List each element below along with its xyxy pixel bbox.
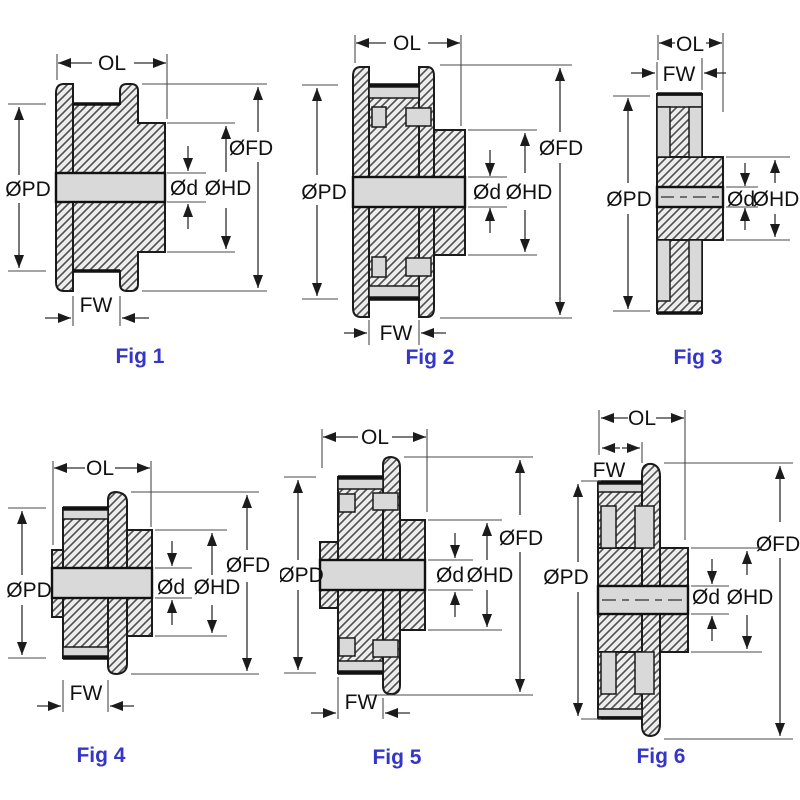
bore	[52, 568, 152, 598]
bore	[56, 173, 165, 202]
top-cap	[63, 510, 108, 519]
dim-label-d: Ød	[170, 177, 198, 200]
dim-label-hd: ØHD	[753, 188, 800, 211]
dim-label-fd: ØFD	[229, 137, 273, 160]
figure-caption: Fig 2	[405, 346, 454, 369]
dim-label-fw: FW	[380, 322, 413, 345]
dim-label-hd: ØHD	[727, 586, 774, 609]
lower-recess-band	[369, 286, 419, 297]
dim-label-ol: OL	[676, 33, 704, 56]
top-cap	[598, 484, 642, 492]
insert	[372, 107, 386, 127]
dim-label-fd: ØFD	[539, 137, 583, 160]
figure-3-drawing: OL FW ØPD Ød ØHD Fig 3	[580, 0, 800, 380]
figure-1-drawing: OL ØPD ØFD ØHD Ød FW Fig 1	[0, 0, 300, 380]
dim-label-pd: ØPD	[5, 178, 51, 201]
dim-label-d: Ød	[692, 586, 720, 609]
dim-label-hd: ØHD	[467, 564, 514, 587]
bore	[320, 560, 425, 590]
dim-label-pd: ØPD	[606, 188, 652, 211]
rim-relief	[689, 240, 702, 301]
dim-label-d: Ød	[157, 576, 185, 599]
figure-6-drawing: OL FW ØPD ØFD ØHD Ød Fig 6	[540, 390, 800, 800]
figure-caption: Fig 4	[76, 744, 125, 767]
dim-label-fd: ØFD	[756, 533, 800, 556]
bottom-cap	[598, 709, 642, 717]
top-cap	[338, 479, 383, 489]
insert	[373, 640, 398, 657]
figure-caption: Fig 5	[372, 746, 421, 769]
top-cap	[657, 95, 702, 107]
figure-2-drawing: OL ØPD ØFD ØHD Ød FW Fig 2	[280, 0, 590, 380]
rim-relief	[635, 506, 654, 548]
insert	[373, 493, 398, 510]
dim-label-d: Ød	[436, 564, 464, 587]
lower-body	[369, 207, 419, 299]
upper-body	[369, 85, 419, 177]
fig6-pulley-cross-section	[598, 464, 688, 736]
fig2-pulley-cross-section	[353, 67, 465, 317]
upper-recess-band	[369, 87, 419, 98]
fig3-pulley-cross-section	[657, 94, 723, 313]
fig5-pulley-cross-section	[320, 457, 425, 694]
dim-label-fw: FW	[663, 63, 696, 86]
lower-body	[73, 202, 165, 291]
dim-label-ol: OL	[86, 457, 114, 480]
dim-label-fd: ØFD	[226, 554, 270, 577]
figure-4-drawing: OL ØPD ØFD ØHD Ød FW Fig 4	[0, 390, 290, 800]
figure-caption: Fig 1	[115, 345, 164, 368]
hub-upper	[434, 130, 465, 177]
dim-label-fw: FW	[345, 691, 378, 714]
rim-relief	[601, 506, 616, 548]
dim-label-d: Ød	[727, 188, 755, 211]
fig4-pulley-cross-section	[52, 492, 152, 674]
dim-label-fw: FW	[80, 294, 113, 317]
insert	[339, 638, 355, 656]
dim-label-pd: ØPD	[280, 564, 324, 587]
pulley-figures-sheet: OL ØPD ØFD ØHD Ød FW Fig 1	[0, 0, 800, 800]
dim-label-ol: OL	[98, 52, 126, 75]
figure-caption: Fig 6	[636, 745, 685, 768]
dim-label-fw: FW	[70, 682, 103, 705]
dim-label-fd: ØFD	[499, 527, 543, 550]
rim-relief	[657, 107, 670, 157]
dim-label-ol: OL	[628, 407, 656, 430]
dim-label-d: Ød	[473, 181, 501, 204]
rim-relief	[635, 652, 654, 694]
bottom-cap	[338, 661, 383, 671]
bottom-cap	[63, 647, 108, 656]
dim-label-hd: ØHD	[194, 576, 241, 599]
dim-label-pd: ØPD	[543, 566, 589, 589]
rim-relief	[657, 240, 670, 301]
rim-relief	[601, 652, 616, 694]
figure-caption: Fig 3	[673, 346, 722, 369]
figure-5-drawing: OL ØPD ØFD ØHD Ød FW Fig 5	[280, 390, 560, 800]
dim-label-ol: OL	[393, 32, 421, 55]
dim-label-hd: ØHD	[506, 181, 553, 204]
dim-label-fw: FW	[593, 459, 626, 482]
fig1-pulley-cross-section	[56, 84, 165, 291]
rim-relief	[689, 107, 702, 157]
upper-body	[73, 84, 165, 173]
insert	[406, 108, 431, 126]
insert	[406, 258, 431, 276]
dim-label-hd: ØHD	[205, 177, 252, 200]
dim-label-pd: ØPD	[6, 579, 52, 602]
insert	[372, 257, 386, 277]
bore	[353, 177, 465, 207]
insert	[339, 494, 355, 512]
dim-label-pd: ØPD	[301, 181, 347, 204]
hub-lower	[434, 207, 465, 255]
dim-label-ol: OL	[361, 426, 389, 449]
